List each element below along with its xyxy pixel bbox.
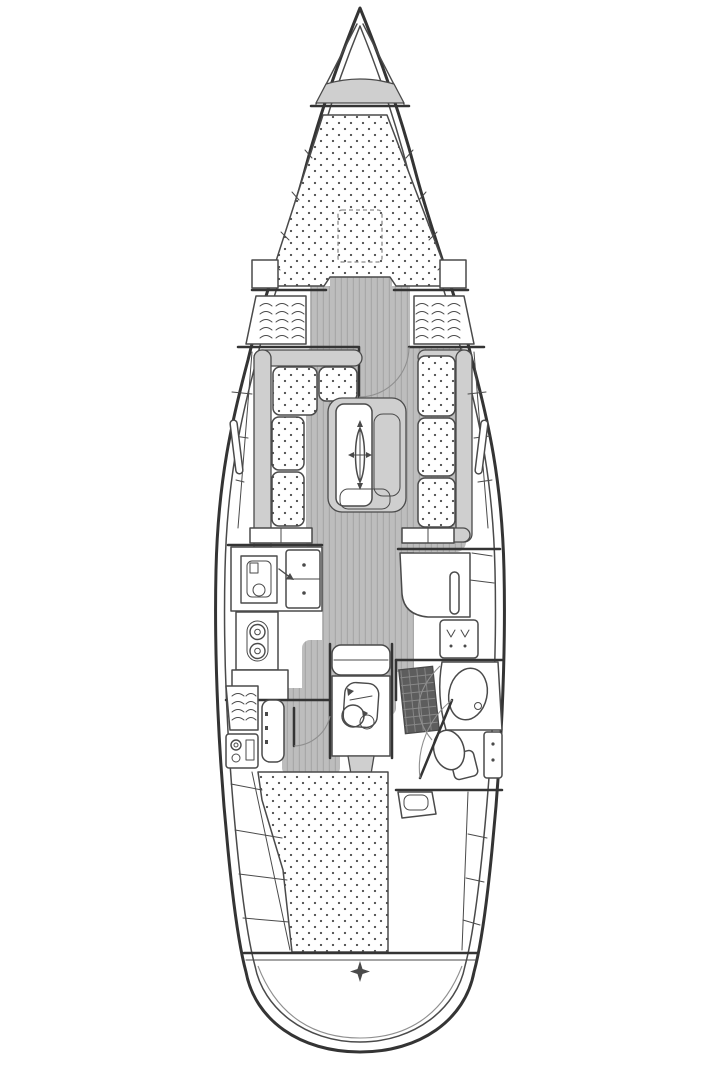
forward-cabin [252, 115, 468, 290]
heads-washbasin [440, 662, 502, 730]
v-berth-corner-locker-starboard [440, 260, 466, 288]
v-berth-corner-locker-port [252, 260, 278, 288]
nav-hull-shelf-dividers [470, 553, 494, 583]
companionway-steps [332, 645, 390, 675]
aft-double-bed [258, 772, 388, 952]
aft-cabin-step-seat [262, 700, 284, 762]
settee-cushion [273, 367, 317, 415]
anchor-locker [311, 79, 409, 106]
aft-cabin-hanging-locker [226, 686, 258, 730]
settee-cushion [418, 356, 455, 416]
aft-cabin-vanity [226, 734, 258, 768]
heads-cabinet [484, 732, 502, 778]
nav-seat [440, 620, 478, 658]
straight-settee-starboard [418, 350, 472, 542]
settee-cushion [418, 418, 455, 476]
yacht-floorplan [0, 0, 719, 1080]
nav-desk-instrument [450, 572, 459, 614]
settee-cushion [272, 472, 304, 526]
grab-rail-port [230, 420, 244, 474]
saloon-table [328, 398, 406, 512]
engine-box [332, 676, 390, 756]
heads-compartment [396, 660, 502, 790]
settee-cushion [418, 478, 455, 527]
galley-stove-burners [236, 612, 278, 670]
rudder-post-symbol [350, 961, 370, 982]
aft-cabin-seat-starboard [398, 792, 436, 818]
settee-cushion [272, 417, 304, 470]
settee-cushion [319, 367, 357, 401]
